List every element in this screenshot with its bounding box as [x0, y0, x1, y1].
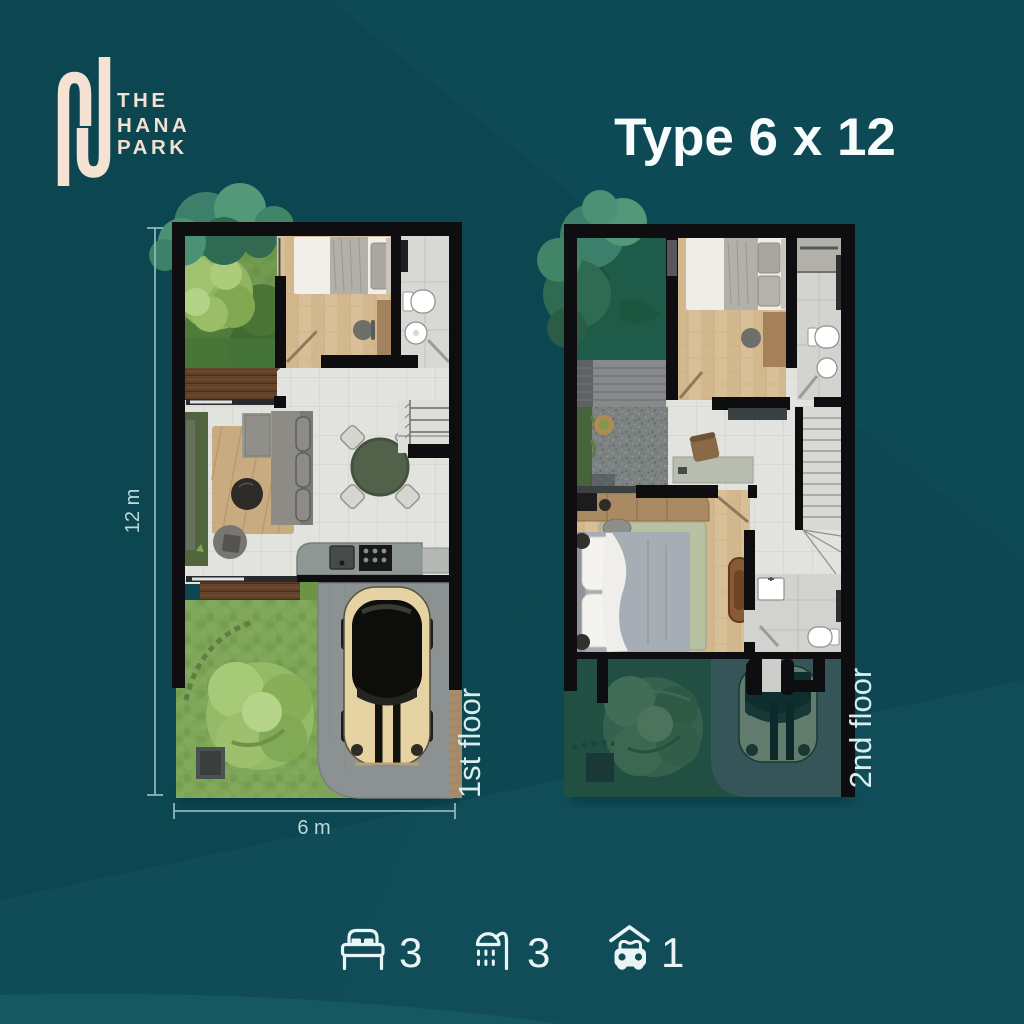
svg-text:THE: THE — [117, 89, 169, 112]
svg-text:HANA: HANA — [117, 114, 190, 137]
svg-text:12 m: 12 m — [122, 489, 144, 533]
svg-text:Type 6 x 12: Type 6 x 12 — [614, 108, 896, 167]
svg-text:3: 3 — [399, 929, 422, 976]
svg-text:PARK: PARK — [117, 136, 188, 159]
svg-text:3: 3 — [527, 929, 550, 976]
svg-text:2nd floor: 2nd floor — [843, 668, 878, 789]
svg-text:1: 1 — [661, 929, 684, 976]
svg-text:1st floor: 1st floor — [452, 688, 487, 798]
svg-text:6 m: 6 m — [297, 817, 330, 839]
